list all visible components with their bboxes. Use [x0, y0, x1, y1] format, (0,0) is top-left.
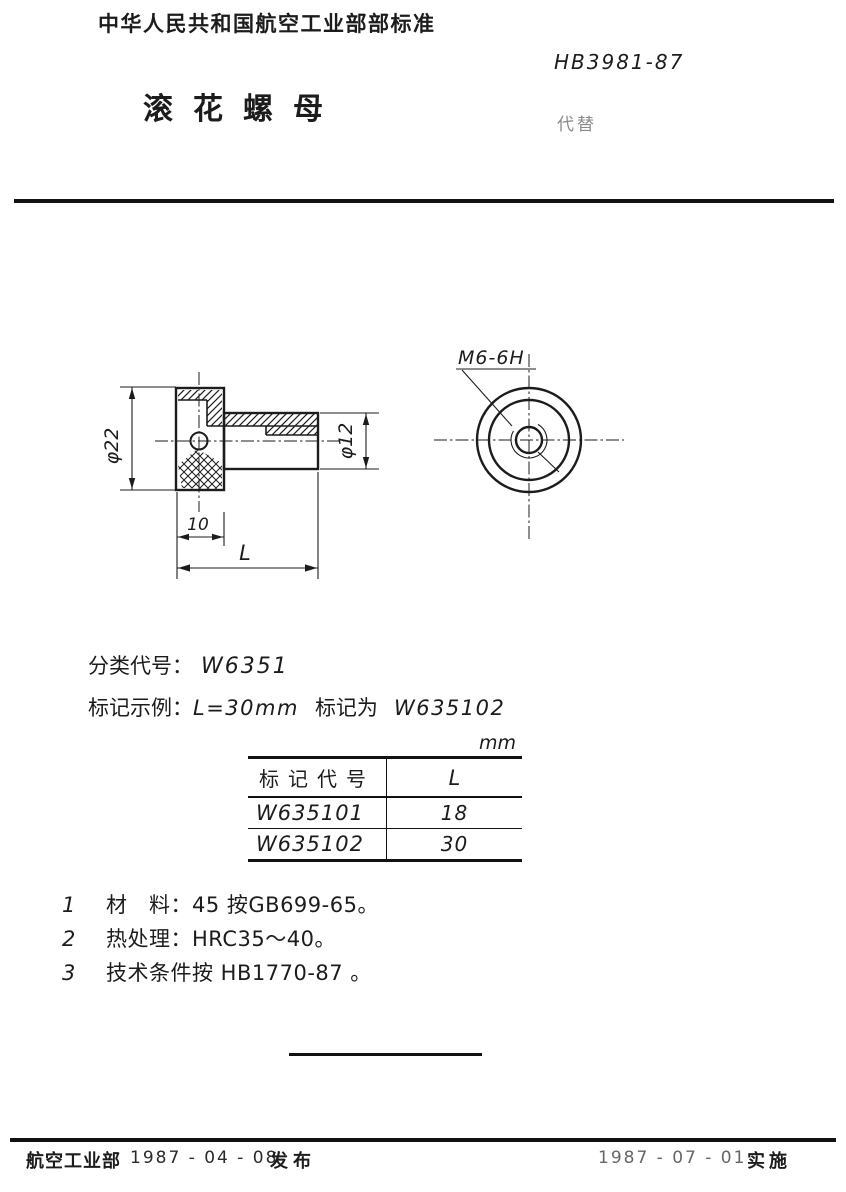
- dim-head-diameter: φ22: [101, 428, 123, 465]
- note-item: 2 热处理：HRC35～40。: [62, 926, 379, 952]
- classification-code: W6351: [193, 654, 289, 679]
- note-text: 热处理：HRC35～40。: [106, 926, 336, 952]
- footer-divider-line: [10, 1138, 836, 1142]
- footer-issuer: 航空工业部: [26, 1147, 121, 1173]
- table-header-length: L: [387, 759, 522, 796]
- marking-example-code: W635102: [394, 696, 505, 720]
- footer-issue-date: 1987 - 04 - 08: [130, 1148, 278, 1168]
- standard-number: HB3981-87: [554, 50, 684, 74]
- notes-list: 1 材 料：45 按GB699-65。 2 热处理：HRC35～40。 3 技术…: [62, 892, 379, 994]
- marking-designation-label: 标记为: [315, 696, 378, 720]
- table-grid: 标记代号 L W635101 18 W635102 30: [248, 756, 522, 862]
- footer-implement-action: 实施: [747, 1147, 791, 1173]
- note-number: 2: [62, 926, 106, 952]
- footer-issue-action: 发布: [270, 1147, 316, 1173]
- note-item: 3 技术条件按 HB1770-87 。: [62, 960, 379, 986]
- page-title: 滚花螺母: [143, 84, 343, 128]
- footer-implement-date: 1987 - 07 - 01: [598, 1148, 746, 1168]
- replaces-label: 代替: [557, 110, 597, 135]
- header-divider-line: [14, 199, 834, 203]
- table-header-code: 标记代号: [248, 759, 387, 796]
- section-view-left: [155, 372, 345, 512]
- table-cell-length: 30: [387, 829, 522, 859]
- marking-example-condition: L=30mm: [193, 696, 299, 720]
- marking-example-line: 标记示例：L=30mm标记为W635102: [88, 692, 505, 722]
- standard-document-page: 中华人民共和国航空工业部部标准 HB3981-87 滚花螺母 代替: [0, 0, 846, 1192]
- end-view-right: M6-6H: [434, 347, 624, 541]
- dim-head-length: 10: [187, 515, 209, 535]
- table-row: W635101 18: [248, 798, 522, 828]
- table-cell-code: W635101: [248, 798, 387, 828]
- size-table: mm 标记代号 L W635101 18 W635102 30: [248, 732, 522, 862]
- note-number: 3: [62, 960, 106, 986]
- table-header-row: 标记代号 L: [248, 759, 522, 798]
- note-item: 1 材 料：45 按GB699-65。: [62, 892, 379, 918]
- table-row: W635102 30: [248, 828, 522, 859]
- table-unit-label: mm: [248, 732, 522, 756]
- table-cell-length: 18: [387, 798, 522, 828]
- standard-body-heading: 中华人民共和国航空工业部部标准: [98, 8, 436, 38]
- dim-total-length: L: [239, 541, 251, 565]
- thread-spec-label: M6-6H: [458, 347, 525, 369]
- note-number: 1: [62, 892, 106, 918]
- mid-separator-line: [289, 1053, 482, 1056]
- marking-example-label: 标记示例：: [88, 696, 193, 720]
- knurl-pattern: [178, 449, 222, 489]
- technical-drawing: φ22 φ12 10 L: [100, 340, 650, 590]
- table-cell-code: W635102: [248, 829, 387, 859]
- classification-label: 分类代号：: [88, 654, 193, 678]
- note-text: 技术条件按 HB1770-87 。: [106, 960, 372, 986]
- classification-line: 分类代号：W6351: [88, 650, 289, 680]
- note-text: 材 料：45 按GB699-65。: [106, 892, 379, 918]
- dim-body-diameter: φ12: [335, 423, 357, 460]
